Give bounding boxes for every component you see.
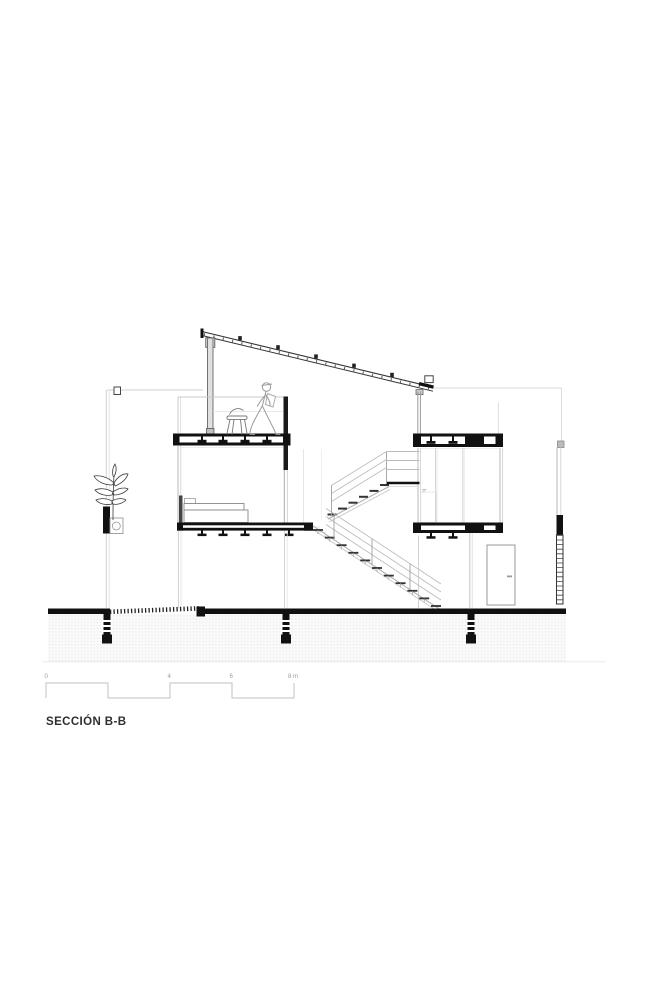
planter-box — [103, 507, 110, 534]
section-drawing: 0 4 6 8 m SECCIÓN B-B — [0, 0, 647, 1000]
right-room-top-slab — [413, 434, 503, 448]
scale-label-4: 4 — [168, 674, 172, 680]
ramp-hatch-strip — [110, 608, 201, 612]
bed — [179, 496, 248, 524]
drawing-title: SECCIÓN B-B — [46, 715, 126, 728]
scale-bar: 0 4 6 8 m — [45, 674, 299, 698]
ground — [42, 607, 606, 662]
scale-label-6: 6 — [230, 674, 234, 680]
person-figure — [250, 383, 280, 435]
level-marker — [423, 490, 427, 492]
mezzanine-end-post — [284, 397, 289, 435]
right-room-bottom-slab — [413, 523, 503, 539]
floor-joists — [198, 531, 294, 537]
roof-left-end — [201, 329, 204, 339]
soil-hatch — [48, 614, 566, 662]
steel-column-right — [416, 390, 423, 434]
fixture — [421, 492, 437, 523]
mezzanine-floor-slab — [173, 434, 291, 446]
plinth-walls — [178, 531, 287, 609]
stool — [227, 409, 247, 435]
roof-batten-ticks — [204, 335, 432, 390]
bed-headboard — [179, 496, 183, 524]
bed-base — [184, 510, 248, 523]
scale-label-8m: 8 m — [288, 674, 298, 680]
upper-flight — [328, 483, 420, 522]
scale-label-0: 0 — [45, 674, 49, 680]
sloped-roof — [201, 329, 434, 392]
roof-right-end — [419, 384, 434, 388]
door — [487, 545, 515, 605]
section-drawing-sheet: 0 4 6 8 m SECCIÓN B-B — [0, 0, 647, 1000]
bedroom-floor-slab — [177, 523, 313, 537]
door-handle — [507, 576, 512, 578]
planter-plant — [94, 464, 128, 534]
pile — [281, 614, 291, 644]
bed-pillow — [185, 499, 196, 504]
plant — [94, 464, 128, 520]
steel-column-left — [206, 338, 215, 434]
bed-mattress — [184, 504, 244, 511]
lower-flight — [313, 526, 441, 614]
ground-line-right — [203, 609, 566, 615]
pile — [102, 614, 112, 644]
boundary-post-cap — [114, 387, 121, 395]
roof-gutter-box — [425, 376, 433, 383]
pile — [466, 614, 476, 644]
ground-line-left — [48, 609, 110, 615]
